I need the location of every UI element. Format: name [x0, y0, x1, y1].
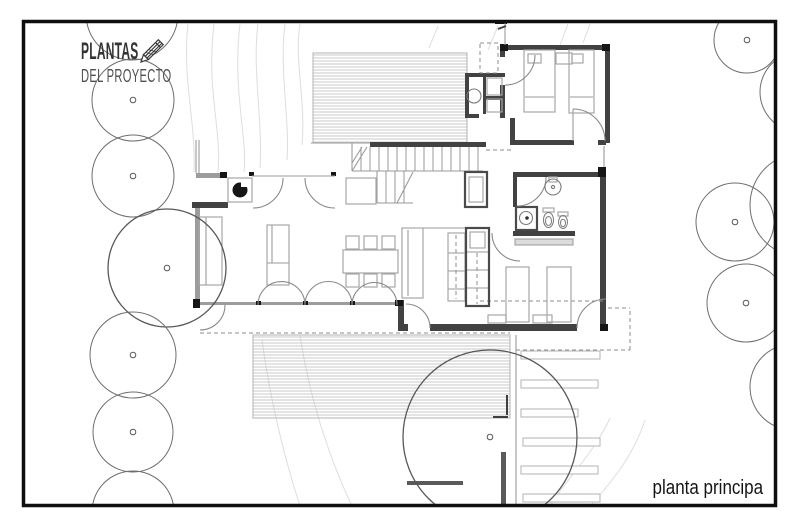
layer-sanitary-ellipses	[544, 213, 568, 229]
layer-walls-gray	[195, 173, 396, 305]
layer-garden-walls	[407, 452, 506, 505]
pencil-icon	[133, 33, 175, 69]
plan-caption: planta principa	[652, 477, 763, 500]
layer-dashed-lines	[200, 150, 630, 350]
layer-stepping-stones	[521, 351, 600, 502]
layer-stair-treads	[361, 147, 478, 203]
layer-headboard-shelf	[515, 239, 573, 245]
layer-stove-notch	[241, 181, 247, 187]
floor-plan-page: PLANTAS DEL PROYECTO planta principa	[0, 0, 800, 532]
project-subtitle: DEL PROYECTO	[81, 67, 172, 85]
